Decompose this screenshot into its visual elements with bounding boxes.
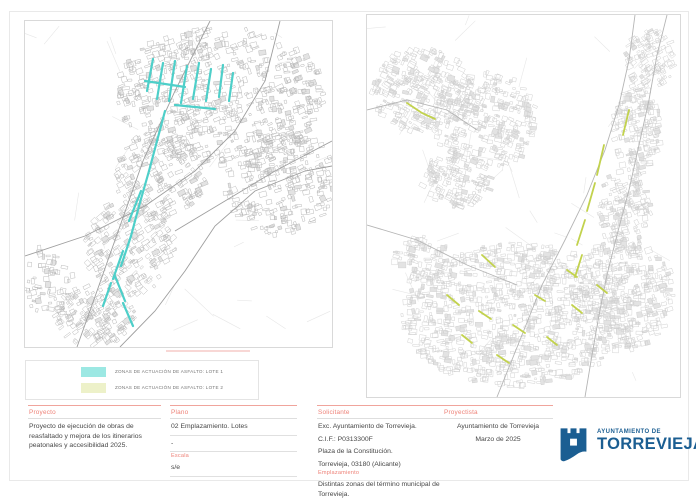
map-lote1-panel [24, 20, 333, 348]
plano-label: Plano [170, 406, 297, 419]
proyecto-value: Proyecto de ejecución de obras de reasfa… [28, 419, 161, 451]
lote1-swatch [81, 367, 106, 377]
proyectista-line-2: Marzo de 2025 [443, 432, 553, 445]
logo-line-2: TORREVIEJA [597, 436, 696, 453]
escala-label: Escala [170, 452, 297, 460]
plan-sheet: { "legend": { "items": [ {"label": "ZONA… [0, 0, 696, 492]
solicitante-line-1: Exc. Ayuntamiento de Torrevieja. [317, 419, 443, 432]
proyectista-line-1: Ayuntamiento de Torrevieja [443, 419, 553, 432]
solicitante-line-3: Plaza de la Constitución. [317, 444, 443, 457]
legend-box: ZONAS DE ACTUACIÓN DE ASFALTO: LOTE 1 ZO… [25, 360, 259, 400]
titleblock-col-proyecto: Proyecto Proyecto de ejecución de obras … [28, 405, 161, 451]
logo-text: AYUNTAMIENTO DE TORREVIEJA [597, 429, 696, 453]
fold-mark [166, 350, 250, 352]
map-municipal-panel [366, 14, 681, 398]
proyecto-label: Proyecto [28, 406, 161, 419]
emplazamiento-value: Distintas zonas del término municipal de… [317, 477, 443, 499]
lote2-swatch [81, 383, 106, 393]
castle-icon [558, 423, 589, 463]
legend-label-lote2: ZONAS DE ACTUACIÓN DE ASFALTO: LOTE 2 [115, 385, 223, 390]
legend-item-lote2: ZONAS DE ACTUACIÓN DE ASFALTO: LOTE 2 [26, 382, 258, 394]
map-municipal-drawing [367, 15, 680, 397]
solicitante-line-4: Torrevieja, 03180 (Alicante) [317, 457, 443, 470]
legend-item-lote1: ZONAS DE ACTUACIÓN DE ASFALTO: LOTE 1 [26, 366, 258, 378]
ayuntamiento-logo: AYUNTAMIENTO DE TORREVIEJA [558, 423, 690, 467]
plano-value: 02 Emplazamiento. Lotes [170, 419, 297, 436]
plano-extra: - [170, 436, 297, 453]
proyectista-label: Proyectista [443, 406, 553, 419]
legend-label-lote1: ZONAS DE ACTUACIÓN DE ASFALTO: LOTE 1 [115, 369, 223, 374]
emplazamiento-label: Emplazamiento [317, 469, 443, 477]
titleblock-col-solicitante: Solicitante Exc. Ayuntamiento de Torrevi… [317, 405, 443, 500]
solicitante-line-2: C.I.F.: P0313300F [317, 432, 443, 445]
escala-value: s/e [170, 460, 297, 477]
titleblock-col-plano: Plano 02 Emplazamiento. Lotes - Escala s… [170, 405, 297, 477]
map-lote1-drawing [25, 21, 332, 347]
titleblock-col-proyectista: Proyectista Ayuntamiento de Torrevieja M… [443, 405, 553, 444]
solicitante-label: Solicitante [317, 406, 443, 419]
